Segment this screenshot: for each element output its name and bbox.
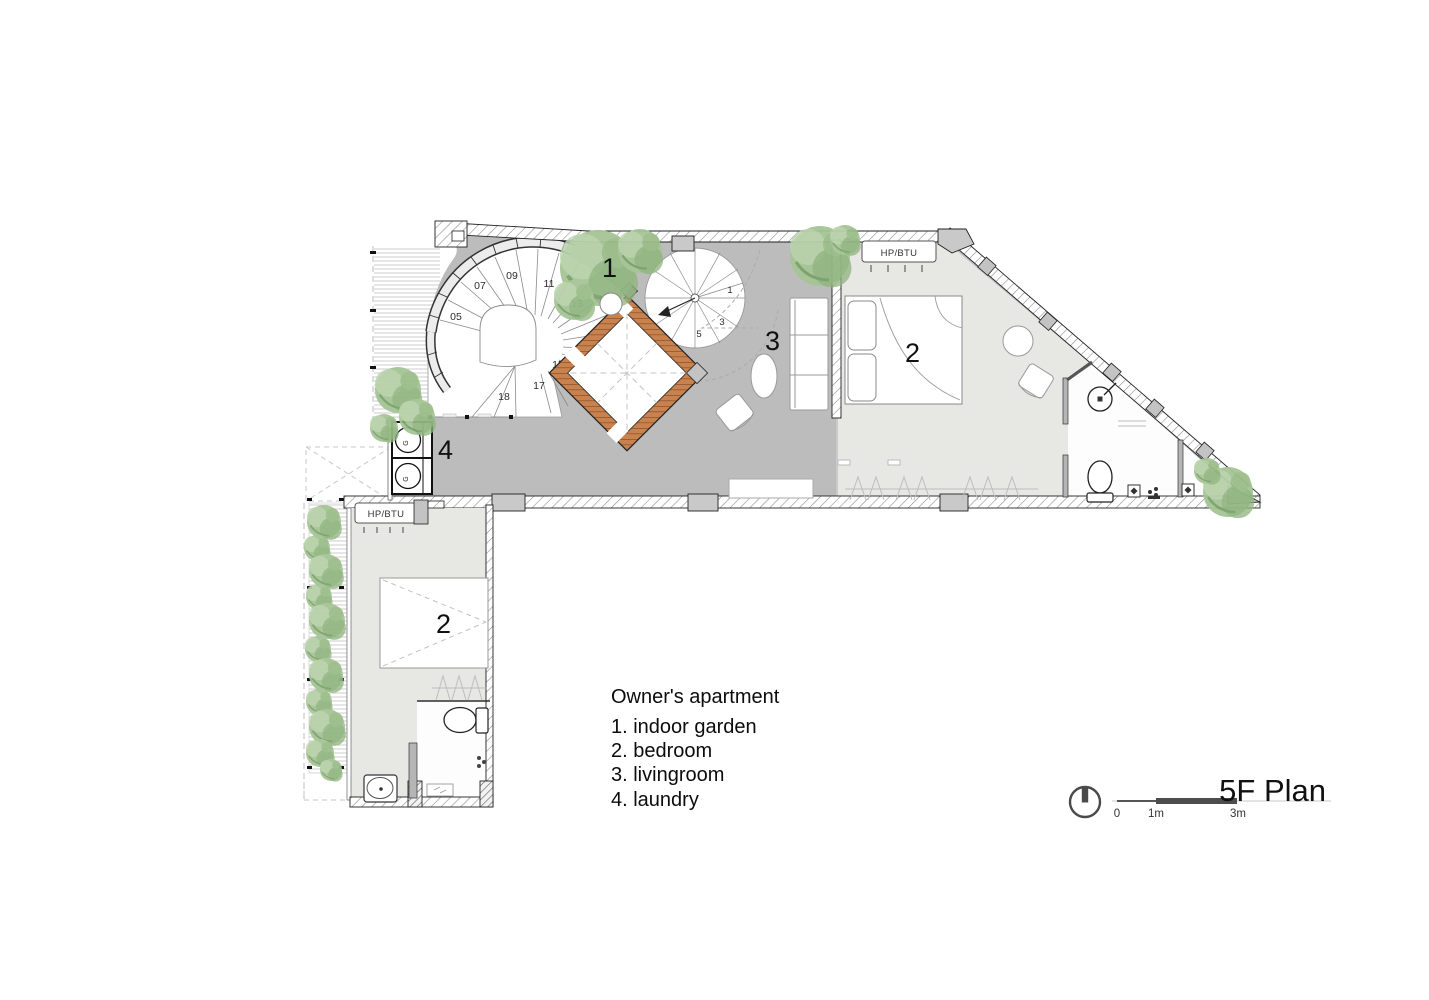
step-number: 05 <box>450 311 462 323</box>
step-number: 5 <box>696 329 701 340</box>
bed <box>380 578 488 668</box>
legend-item: 2. bedroom <box>611 740 712 762</box>
legend: Owner's apartment 1. indoor garden 2. be… <box>611 686 780 811</box>
step-number: 17 <box>533 380 545 392</box>
pillow <box>848 354 876 401</box>
scale-label-0: 0 <box>1114 808 1120 820</box>
legend-item: 4. laundry <box>611 789 699 811</box>
legend-item: 3. livingroom <box>611 764 724 786</box>
planter-pot <box>600 293 622 315</box>
toilet <box>1088 461 1112 493</box>
toilet <box>444 708 488 734</box>
room-label-laundry: 4 <box>438 435 453 465</box>
roof-void-dashed <box>306 447 391 501</box>
step-number: 3 <box>719 317 724 328</box>
hp-btu-label: HP/BTU <box>368 509 405 520</box>
washbasin-lower <box>364 775 397 802</box>
scale-label-1m: 1m <box>1148 808 1164 820</box>
room-label-livingroom: 3 <box>765 326 780 356</box>
legend-title: Owner's apartment <box>611 686 780 708</box>
step-number: 11 <box>544 278 555 290</box>
step-number: 1 <box>727 285 732 296</box>
step-number: 07 <box>474 280 486 292</box>
room-label-bedroom-lower: 2 <box>436 609 451 639</box>
washer-label: G <box>403 476 410 481</box>
hp-btu-label: HP/BTU <box>881 248 918 259</box>
step-number: 09 <box>506 270 518 282</box>
step-number: 18 <box>498 391 510 403</box>
shelf <box>427 784 453 796</box>
floor-plan-canvas: 05 07 09 11 13 15 17 18 <box>0 0 1429 1000</box>
coffee-table <box>751 354 777 398</box>
washer-drum <box>396 464 421 489</box>
legend-item: 1. indoor garden <box>611 716 757 738</box>
sofa <box>790 298 828 410</box>
scale-label-3m: 3m <box>1230 808 1246 820</box>
north-arrow-icon <box>1070 787 1100 817</box>
title-block: 0 1m 3m 5F Plan <box>1070 773 1331 820</box>
side-table <box>1003 326 1033 356</box>
room-label-indoor-garden: 1 <box>602 253 617 283</box>
console <box>729 479 813 498</box>
stair-landing <box>480 305 536 367</box>
lower-wing: HP/BTU <box>347 500 493 807</box>
pillow <box>848 301 876 350</box>
page-title: 5F Plan <box>1219 773 1326 808</box>
washer-label: G <box>403 440 410 445</box>
room-label-bedroom-upper: 2 <box>905 338 920 368</box>
floor-plan-page: 05 07 09 11 13 15 17 18 <box>0 0 1429 1000</box>
